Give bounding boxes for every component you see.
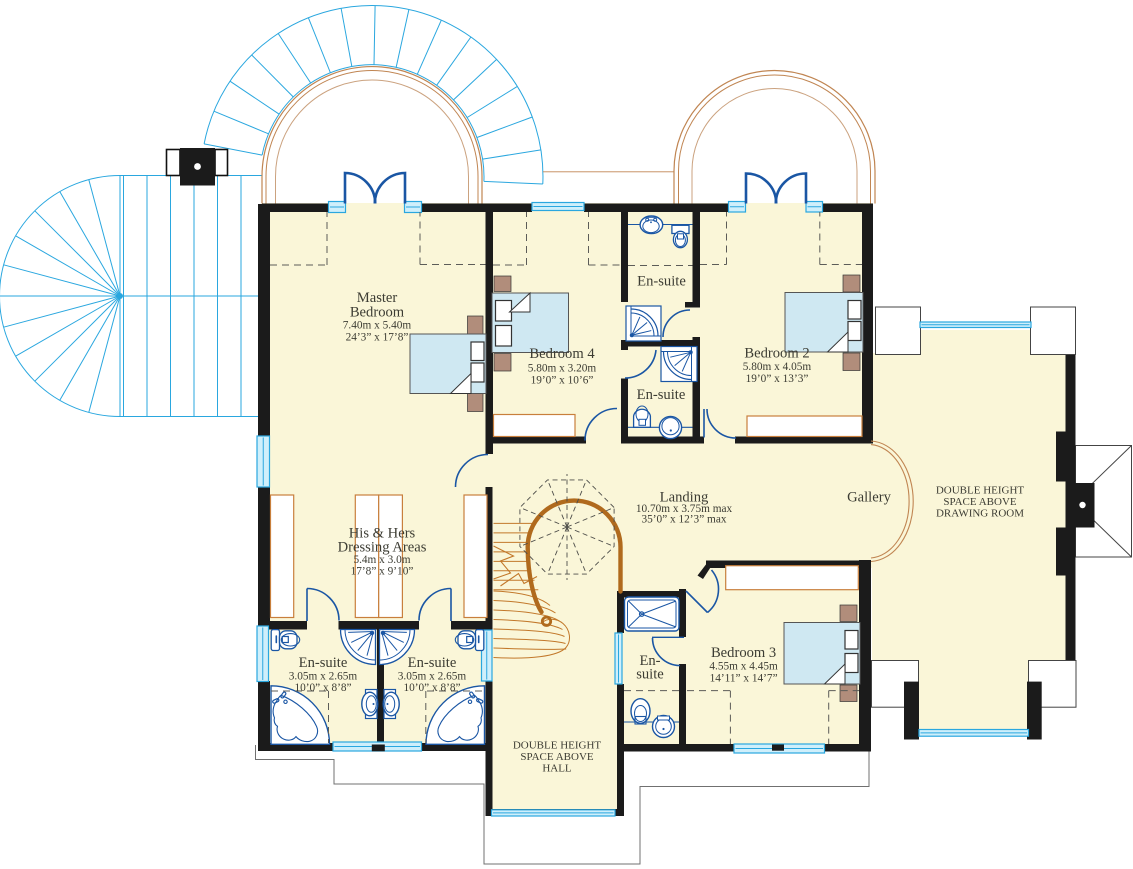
- svg-text:24’3” x 17’8”: 24’3” x 17’8”: [346, 332, 409, 344]
- svg-text:10’0” x 8’8”: 10’0” x 8’8”: [294, 682, 351, 694]
- svg-text:DOUBLE HEIGHT: DOUBLE HEIGHT: [936, 485, 1025, 497]
- svg-text:Bedroom 4: Bedroom 4: [529, 346, 595, 362]
- svg-text:5.4m x 3.0m: 5.4m x 3.0m: [353, 554, 410, 566]
- svg-text:4.55m x 4.45m: 4.55m x 4.45m: [709, 661, 778, 673]
- svg-text:DRAWING ROOM: DRAWING ROOM: [936, 508, 1024, 520]
- svg-text:7.40m x 5.40m: 7.40m x 5.40m: [343, 320, 412, 332]
- svg-text:Bedroom 3: Bedroom 3: [711, 645, 776, 661]
- svg-text:Bedroom: Bedroom: [350, 305, 405, 321]
- svg-text:5.80m x 3.20m: 5.80m x 3.20m: [528, 363, 597, 375]
- svg-text:14’11” x 14’7”: 14’11” x 14’7”: [710, 673, 778, 685]
- svg-text:Gallery: Gallery: [847, 490, 891, 506]
- svg-text:3.05m x 2.65m: 3.05m x 2.65m: [289, 671, 358, 683]
- svg-text:En-suite: En-suite: [637, 274, 686, 290]
- svg-text:SPACE ABOVE: SPACE ABOVE: [520, 751, 594, 763]
- svg-text:En-suite: En-suite: [637, 387, 686, 403]
- svg-text:SPACE ABOVE: SPACE ABOVE: [943, 496, 1017, 508]
- svg-text:Bedroom 2: Bedroom 2: [744, 346, 809, 362]
- svg-text:En-suite: En-suite: [299, 655, 348, 671]
- svg-text:HALL: HALL: [542, 763, 572, 775]
- svg-text:17’8” x 9’10”: 17’8” x 9’10”: [351, 566, 414, 578]
- svg-text:19’0” x 13’3”: 19’0” x 13’3”: [746, 373, 809, 385]
- svg-text:10’0” x 8’8”: 10’0” x 8’8”: [403, 682, 460, 694]
- svg-text:35’0” x 12’3” max: 35’0” x 12’3” max: [641, 514, 726, 526]
- svg-text:DOUBLE HEIGHT: DOUBLE HEIGHT: [513, 740, 602, 752]
- svg-text:suite: suite: [636, 667, 664, 683]
- svg-text:3.05m x 2.65m: 3.05m x 2.65m: [398, 671, 467, 683]
- svg-text:19’0” x 10’6”: 19’0” x 10’6”: [531, 375, 594, 387]
- svg-text:5.80m x 4.05m: 5.80m x 4.05m: [743, 361, 812, 373]
- svg-text:En-suite: En-suite: [408, 655, 457, 671]
